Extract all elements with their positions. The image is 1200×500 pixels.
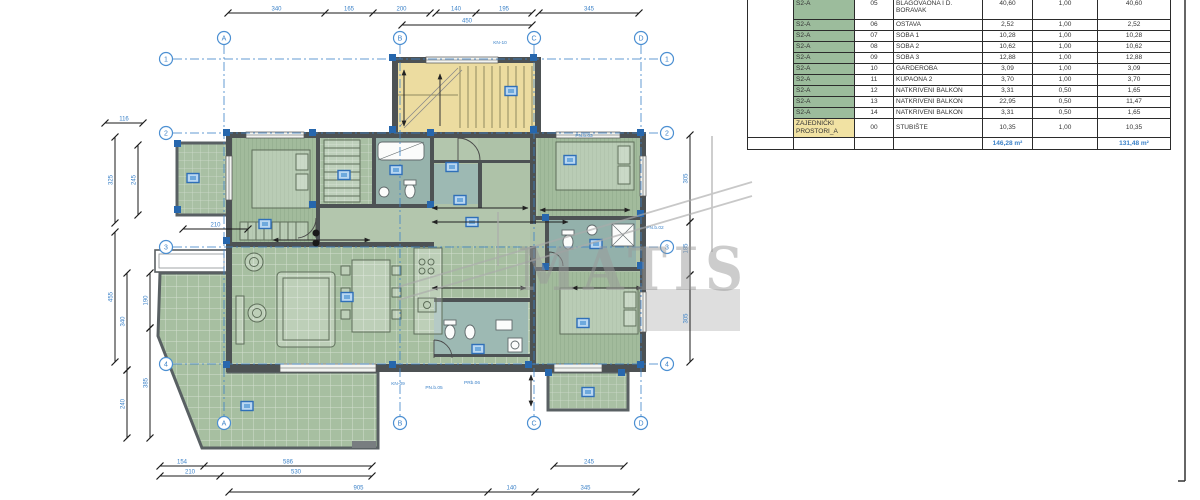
annotation-code: PN.b.05 [425,385,443,391]
rc-column [223,237,230,244]
table-row: S2-A14NATKRIVENI BALKON3,310,501,65 [748,108,1171,119]
reduced-area-cell: 10,35 [1098,119,1171,138]
total-reduced-cell: 131,48 m² [1098,138,1171,150]
room-name-cell: NATKRIVENI BALKON [894,97,983,108]
area-cell: 2,52 [983,20,1033,31]
room-number-cell: 09 [855,53,894,64]
sink-icon [379,187,389,197]
dim-value: 210 [185,470,196,476]
rc-column [618,369,625,376]
rc-column [525,361,532,368]
area-cell: 3,31 [983,86,1033,97]
table-row: S2-A12NATKRIVENI BALKON3,310,501,65 [748,86,1171,97]
totals-row: 146,28 m²131,48 m² [748,138,1171,150]
coefficient-cell: 0,50 [1033,108,1098,119]
room-tag-icon-inner [244,404,250,408]
table-row: S2-A09SOBA 312,881,0012,88 [748,53,1171,64]
room-number-cell: 11 [855,75,894,86]
room-tag-icon-inner [508,89,514,93]
coefficient-cell: 1,00 [1033,119,1098,138]
dim-value: 305 [684,313,690,324]
coefficient-cell: 1,00 [1033,64,1098,75]
table-row: S2-A13NATKRIVENI BALKON22,950,5011,47 [748,97,1171,108]
room-number-cell: 00 [855,119,894,138]
room-number-cell: 06 [855,20,894,31]
grid-marker-D-bottom-label: D [638,420,643,427]
unit-cell: ZAJEDNIČKI PROSTORI_A [794,119,855,138]
room-tag-icon-inner [567,158,573,162]
rc-column [545,369,552,376]
area-cell: 3,31 [983,108,1033,119]
area-cell: 10,28 [983,31,1033,42]
sheet-frame [1178,0,1185,481]
reduced-area-cell: 12,88 [1098,53,1171,64]
annotation-code: KN-10 [493,40,507,46]
room-tag-icon-inner [580,321,586,325]
grid-marker-2-right-label: 2 [665,130,669,137]
empty-cell [894,138,983,150]
rc-column [309,201,316,208]
grid-marker-C-bottom-label: C [531,420,536,427]
area-cell: 3,09 [983,64,1033,75]
grid-marker-1-left-label: 1 [164,56,168,63]
dim-value: 240 [121,398,127,409]
rc-column [637,129,644,136]
dim-value: 455 [109,291,115,302]
room-tag-icon-inner [190,176,196,180]
empty-cell [1033,138,1098,150]
stairwell [392,57,541,138]
coefficient-cell: 1,00 [1033,75,1098,86]
unit-cell: S2-A [794,20,855,31]
room-name-cell: SOBA 3 [894,53,983,64]
reduced-area-cell: 3,09 [1098,64,1171,75]
dim-value: 190 [144,295,150,306]
dim-value: 245 [584,460,595,466]
area-table: S2-A05KUHINJA, BLAGOVAONA I D. BORAVAK40… [747,0,1171,150]
dim-value: 140 [451,7,462,13]
dim-value: 586 [283,460,294,466]
coefficient-cell: 1,00 [1033,53,1098,64]
rc-column [530,126,537,133]
room-tag-icon-inner [449,165,455,169]
room-name-cell: GARDEROBA [894,64,983,75]
dim-value: 116 [119,117,129,123]
dim-value: 345 [580,486,591,492]
grid-marker-4-right-label: 4 [665,361,669,368]
unit-cell: S2-A [794,108,855,119]
room-name-cell: SOBA 1 [894,31,983,42]
rc-column [309,129,316,136]
unit-cell: S2-A [794,0,855,20]
dim-value: 200 [396,7,407,13]
unit-cell: S2-A [794,97,855,108]
room-tag-icon-inner [344,295,350,299]
dim-value: 305 [684,173,690,184]
unit-cell: S2-A [794,75,855,86]
room-name-cell: NATKRIVENI BALKON [894,86,983,97]
area-cell: 12,88 [983,53,1033,64]
dim-value: 325 [109,174,115,185]
coefficient-cell: 1,00 [1033,42,1098,53]
grid-marker-3-left-label: 3 [164,244,168,251]
dim-value: 154 [177,460,188,466]
grid-marker-B-bottom-label: B [398,420,403,427]
room-tag-icon-inner [262,222,268,226]
reduced-area-cell: 10,62 [1098,42,1171,53]
rc-column [174,140,181,147]
annotation-code: KN-09 [391,381,405,387]
rc-column [427,201,434,208]
dim-value: 905 [353,486,364,492]
grid-marker-4-left-label: 4 [164,361,168,368]
room-number-cell: 10 [855,64,894,75]
rc-column [427,129,434,136]
table-row: ZAJEDNIČKI PROSTORI_A00STUBIŠTE10,351,00… [748,119,1171,138]
grid-marker-B-top-label: B [398,35,403,42]
rc-column [223,129,230,136]
unit-cell: S2-A [794,64,855,75]
coefficient-cell: 0,50 [1033,97,1098,108]
room-number-cell: 08 [855,42,894,53]
total-area-cell: 146,28 m² [983,138,1033,150]
grid-marker-A-top-label: A [222,35,227,42]
balcony-top-left [177,143,228,215]
empty-cell [794,138,855,150]
coefficient-cell: 1,00 [1033,20,1098,31]
unit-cell: S2-A [794,86,855,97]
room-number-cell: 07 [855,31,894,42]
dim-value: 385 [144,377,150,388]
toilet-icon [405,184,415,198]
rc-column [389,54,396,61]
area-cell: 40,60 [983,0,1033,20]
reduced-area-cell: 40,60 [1098,0,1171,20]
table-row: S2-A07SOBA 110,281,0010,28 [748,31,1171,42]
room-name-cell: NATKRIVENI BALKON [894,108,983,119]
table-row: S2-A11KUPAONA 23,701,003,70 [748,75,1171,86]
table-row: S2-A08SOBA 210,621,0010,62 [748,42,1171,53]
room-ostava [434,138,478,162]
grid-marker-1-right-label: 1 [665,56,669,63]
rc-column [530,54,537,61]
room-number-cell: 12 [855,86,894,97]
coefficient-cell: 1,00 [1033,31,1098,42]
empty-cell [855,138,894,150]
dim-value: 165 [344,7,355,13]
room-tag-icon-inner [585,390,591,394]
reduced-area-cell: 11,47 [1098,97,1171,108]
room-name-cell: STUBIŠTE [894,119,983,138]
coefficient-cell: 1,00 [1033,0,1098,20]
room-tag-icon-inner [341,173,347,177]
dim-value: 210 [210,223,221,229]
room-number-cell: 13 [855,97,894,108]
unit-cell: S2-A [794,31,855,42]
room-tag-icon-inner [475,347,481,351]
watermark-text: MATIS [518,235,750,305]
rc-column [389,126,396,133]
area-cell: 10,35 [983,119,1033,138]
table-row: S2-A05KUHINJA, BLAGOVAONA I D. BORAVAK40… [748,0,1171,20]
dim-value: 345 [584,7,595,13]
table-row: S2-A06OSTAVA2,521,002,52 [748,20,1171,31]
rc-column [542,214,549,221]
annotation-code: PN.b.03 [575,133,593,139]
reduced-area-cell: 2,52 [1098,20,1171,31]
unit-cell: S2-A [794,42,855,53]
left-margin-cell [748,138,794,150]
floor-plan-sheet: AABBCCDD11223344 34016520014019534545011… [0,0,1200,500]
grid-marker-C-top-label: C [531,35,536,42]
rc-column [174,206,181,213]
grid-marker-2-left-label: 2 [164,130,168,137]
terrace-step [352,441,376,448]
reduced-area-cell: 1,65 [1098,86,1171,97]
dim-value: 340 [121,316,127,327]
unit-cell: S2-A [794,53,855,64]
area-cell: 10,62 [983,42,1033,53]
room-tag-icon-inner [393,168,399,172]
reduced-area-cell: 1,65 [1098,108,1171,119]
reduced-area-cell: 10,28 [1098,31,1171,42]
rc-column [223,361,230,368]
reduced-area-cell: 3,70 [1098,75,1171,86]
dim-value: 195 [499,7,510,13]
room-number-cell: 05 [855,0,894,20]
grid-marker-A-bottom-label: A [222,420,227,427]
room-name-cell: SOBA 2 [894,42,983,53]
annotation-code: PRb.06 [464,380,480,386]
dim-value: 245 [132,174,138,185]
rc-column [637,361,644,368]
left-margin-cell [748,0,794,138]
area-cell: 3,70 [983,75,1033,86]
room-name-cell: KUHINJA, BLAGOVAONA I D. BORAVAK [894,0,983,20]
dim-value: 450 [462,19,473,25]
dim-value: 340 [271,7,282,13]
room-tag-icon-inner [457,198,463,202]
grid-marker-D-top-label: D [638,35,643,42]
dim-value: 530 [291,470,302,476]
coefficient-cell: 0,50 [1033,86,1098,97]
rc-column [389,361,396,368]
room-name-cell: KUPAONA 2 [894,75,983,86]
room-number-cell: 14 [855,108,894,119]
table-row: S2-A10GARDEROBA3,091,003,09 [748,64,1171,75]
area-cell: 22,95 [983,97,1033,108]
room-name-cell: OSTAVA [894,20,983,31]
dim-value: 140 [506,486,517,492]
